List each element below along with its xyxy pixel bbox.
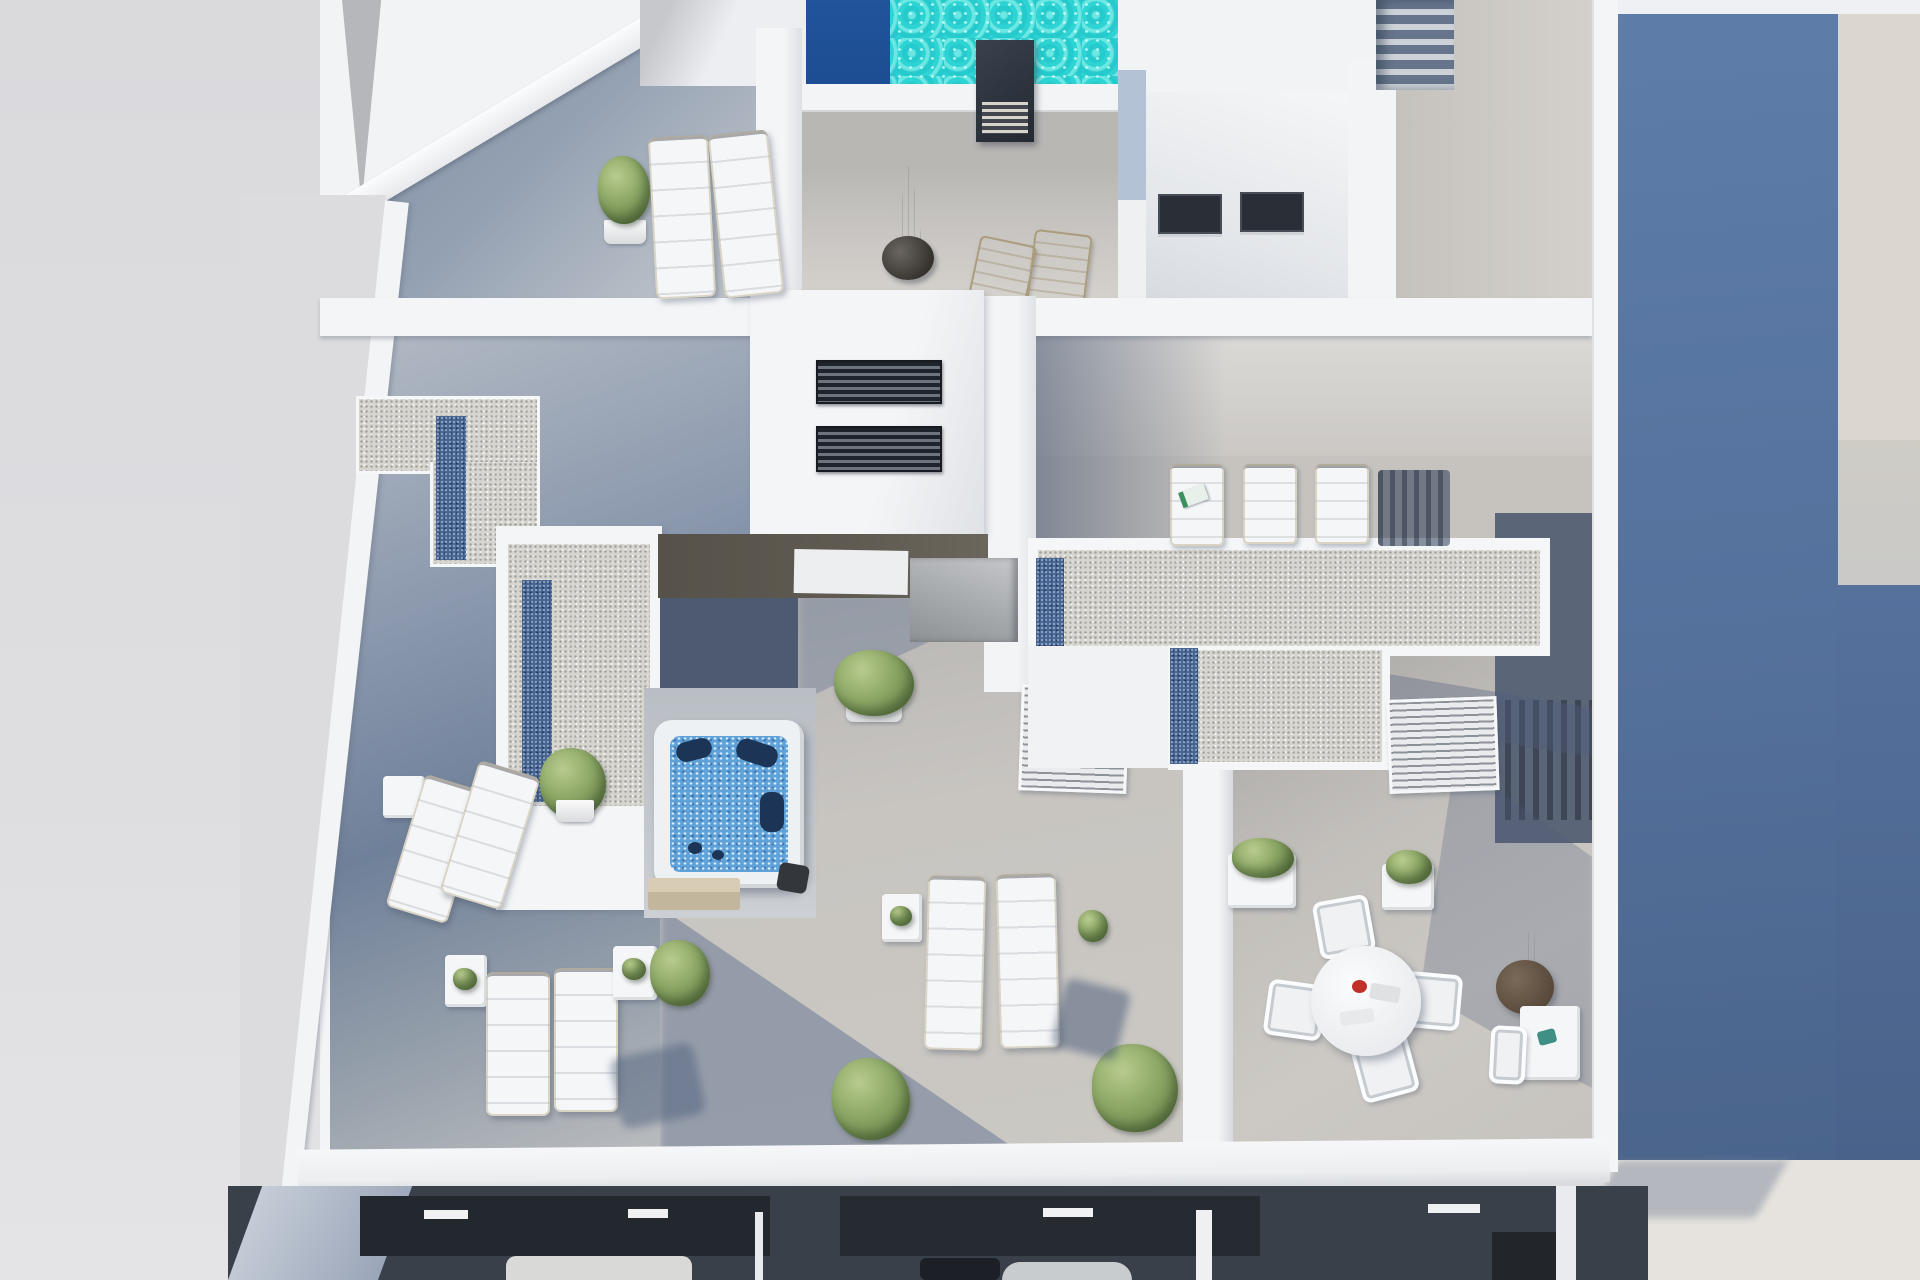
- sw-lounger-4: [554, 968, 618, 1112]
- ne-lounger-1: [1170, 464, 1224, 546]
- skylight-strip-4: [1170, 648, 1198, 764]
- lower-threshold-4: [1428, 1204, 1480, 1213]
- hot-tub-corner-cover: [776, 862, 810, 895]
- lower-sofa: [506, 1256, 692, 1280]
- louvered-closet-se: [1386, 696, 1499, 794]
- mid-se-partition: [1183, 756, 1233, 1168]
- lower-mullion-2: [1196, 1210, 1212, 1280]
- nw-lounger-1: [648, 135, 716, 300]
- nw-plant: [598, 156, 650, 224]
- chimney-vent-grille: [982, 102, 1028, 134]
- mid-lounger-2: [996, 873, 1061, 1049]
- sw-side-table-1-plant: [453, 968, 477, 990]
- lower-threshold-1: [424, 1210, 468, 1219]
- shaded-deck-north-of-jacuzzi: [660, 598, 798, 698]
- right-blue-wall-lower: [1836, 585, 1920, 1172]
- ne-window-1: [1158, 194, 1222, 237]
- mid-plant-small: [1078, 910, 1108, 942]
- ne-lightwell-edge-blue: [1118, 70, 1146, 200]
- lower-threshold-3: [1043, 1208, 1093, 1217]
- mid-lounger-1: [924, 875, 987, 1050]
- hot-tub-jet-1: [688, 842, 702, 854]
- pool-coping: [788, 84, 1124, 112]
- se-planter-plant-2: [1386, 850, 1432, 884]
- lower-mullion-1: [755, 1212, 763, 1280]
- ne-lounger-shadow: [1378, 470, 1450, 546]
- stairwell-opening: [910, 558, 1018, 642]
- white-slab-right: [1028, 646, 1168, 768]
- sw-plant-2: [650, 940, 710, 1006]
- east-parapet: [1592, 0, 1618, 1172]
- lower-white-pillar: [1556, 1186, 1576, 1280]
- sw-lounger-3: [486, 972, 550, 1116]
- hot-tub-jet-2: [712, 850, 724, 860]
- exterior-stairs: [1376, 0, 1454, 90]
- hot-tub-steps: [648, 878, 740, 910]
- mid-side-table-plant: [890, 906, 912, 926]
- gravel-T-bar-fill: [1038, 550, 1540, 646]
- ne-volume-right-band: [1348, 60, 1396, 335]
- lower-kitchen-run-1: [360, 1196, 770, 1256]
- lower-dark-block: [1492, 1232, 1558, 1280]
- right-blue-wall: [1602, 0, 1838, 1172]
- rooftop-render: [0, 0, 1920, 1280]
- hot-tub-seat-3: [760, 792, 784, 832]
- lower-round-table: [1002, 1262, 1132, 1280]
- sw-side-table-2-plant: [622, 958, 646, 980]
- umbrella-base-north: [882, 236, 934, 280]
- ne-window-2: [1240, 192, 1304, 235]
- skylight-strip-1: [436, 416, 466, 560]
- lower-threshold-2: [628, 1209, 668, 1218]
- stair-bulkhead: [750, 290, 984, 534]
- mid-plant: [834, 650, 914, 716]
- pool-deep-lane: [806, 0, 890, 84]
- se-chair: [1489, 1025, 1528, 1085]
- sw-plant-1-pot: [556, 800, 594, 822]
- right-beige-roof: [1836, 0, 1920, 440]
- lower-chairs-dark: [920, 1258, 1000, 1280]
- ne-lounger-2: [1243, 464, 1297, 544]
- right-white-top-strip: [1602, 0, 1920, 14]
- gravel-T-leg-fill: [1196, 650, 1382, 762]
- skylight-strip-3: [1036, 558, 1064, 646]
- se-planter-plant-1: [1232, 838, 1294, 878]
- mid-plant-south-1: [832, 1058, 910, 1140]
- ne-lounger-3: [1315, 464, 1369, 544]
- bulkhead-skylight-1: [816, 360, 942, 404]
- dining-table-round: [1311, 946, 1421, 1056]
- bulkhead-skylight-2: [816, 426, 942, 472]
- table-red-flower: [1352, 980, 1367, 993]
- lower-floor-strip: [228, 1186, 1648, 1280]
- white-slab-center: [794, 549, 909, 595]
